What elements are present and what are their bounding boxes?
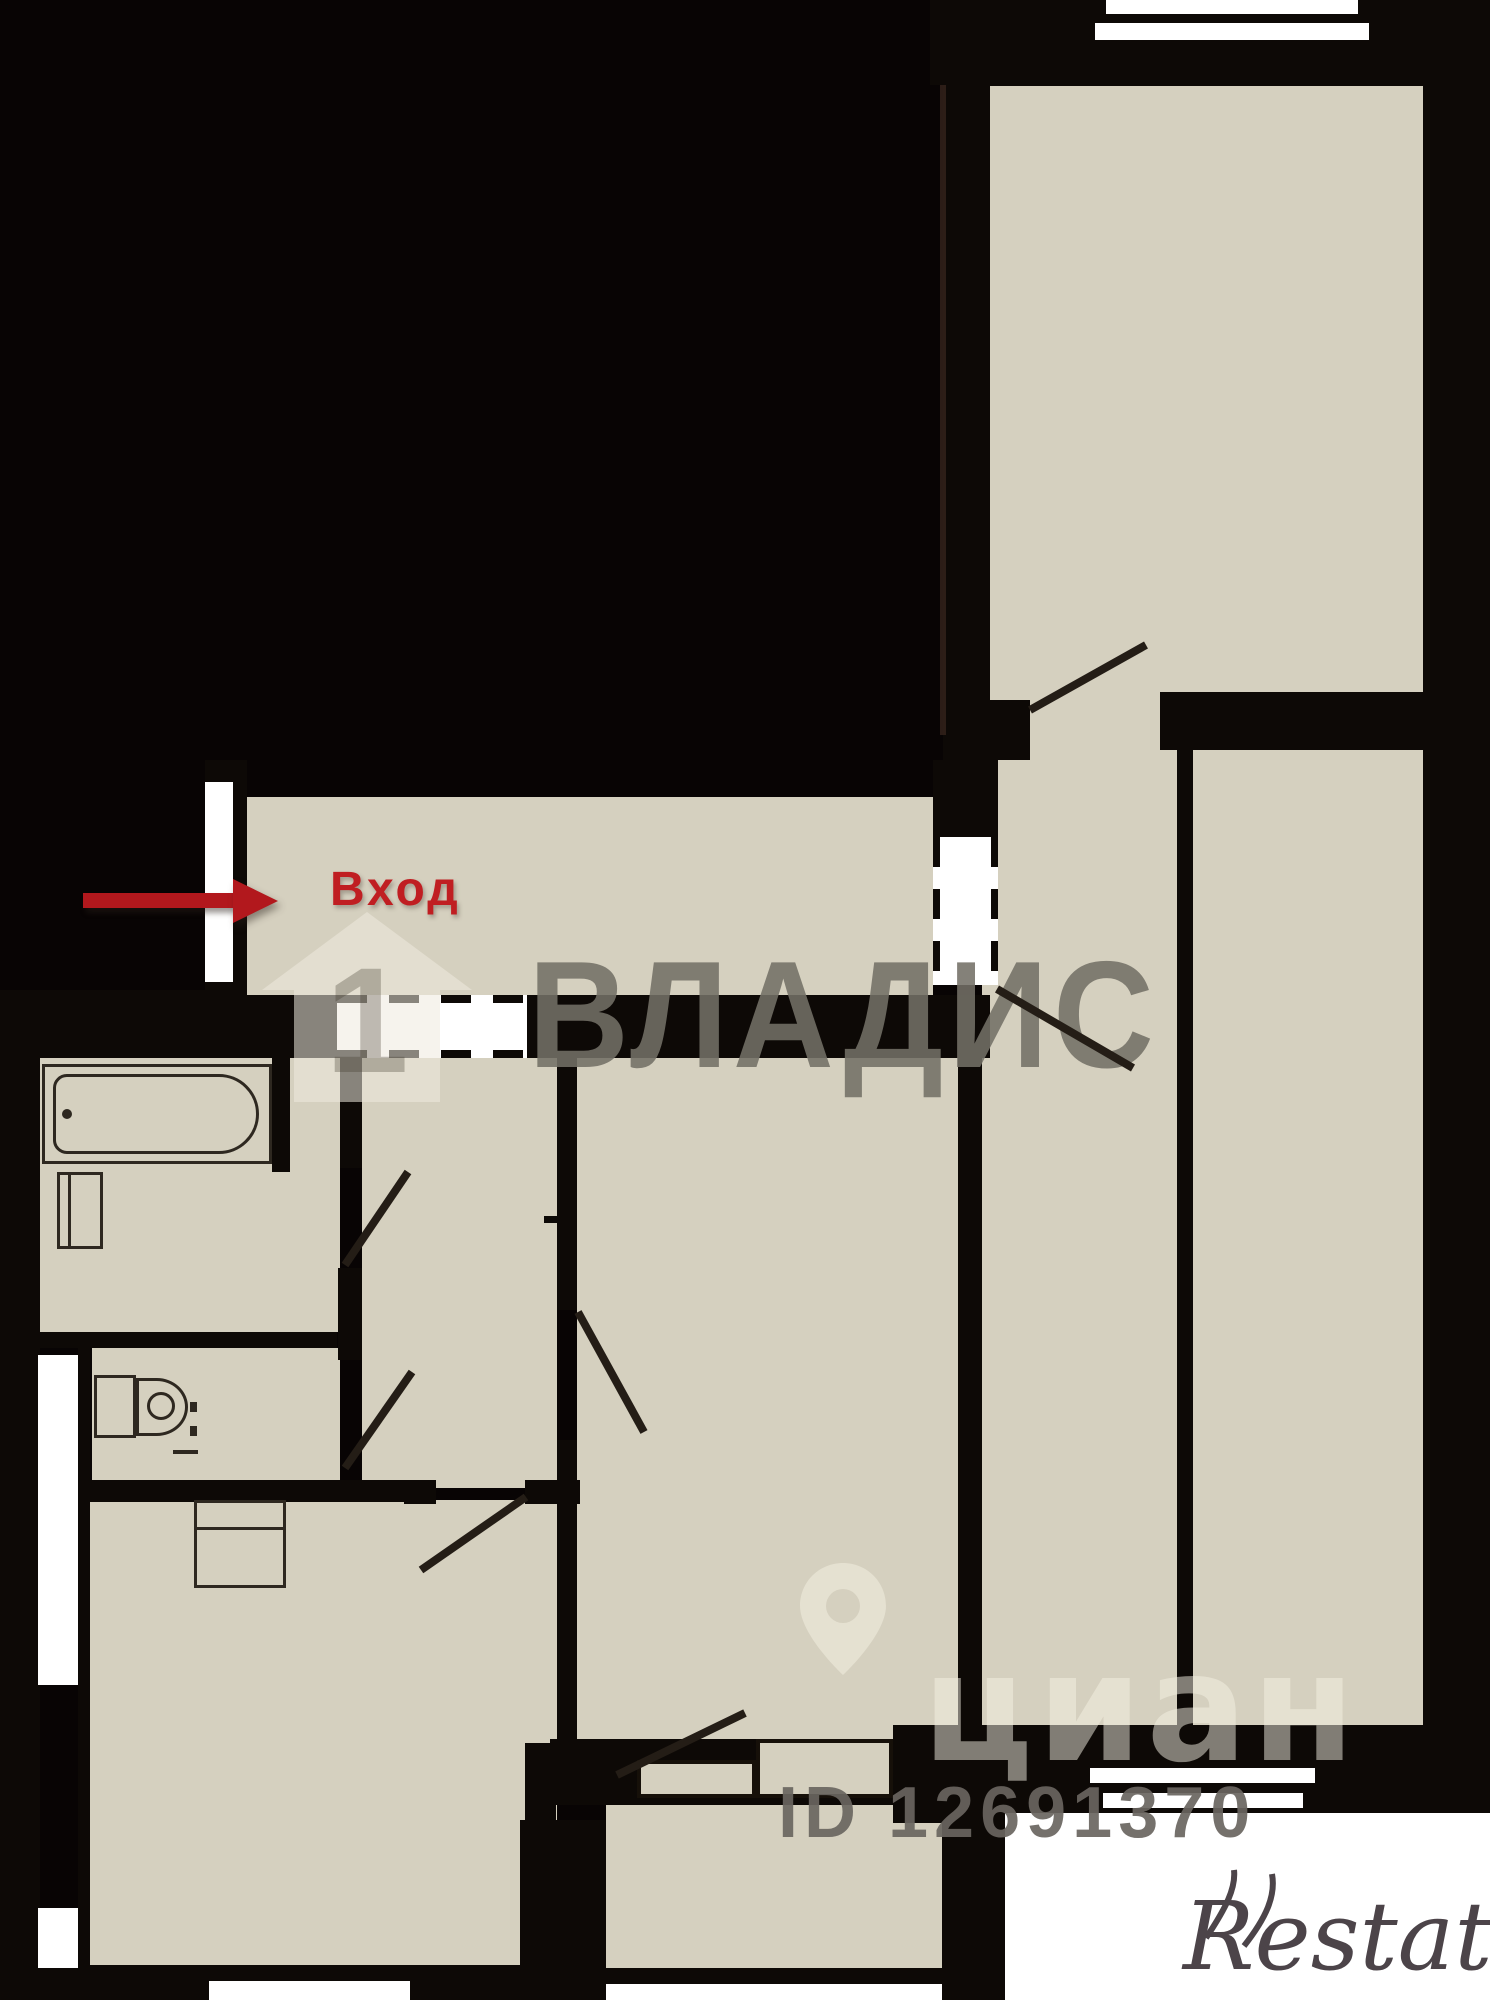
corridor	[362, 1058, 557, 1488]
vladis-house-logo-icon: 1	[262, 912, 472, 1102]
toilet-mark	[190, 1402, 197, 1412]
entrance-label: Вход	[330, 862, 461, 917]
closet-cell	[637, 1760, 756, 1798]
svg-text:1: 1	[325, 936, 408, 1102]
toilet-tank-icon	[94, 1375, 136, 1438]
listing-id-text: ID 12691370	[778, 1772, 1256, 1854]
wall	[37, 1480, 406, 1502]
wall	[943, 700, 1030, 760]
window-bottom-left	[209, 1981, 410, 2000]
wall-tick	[544, 1216, 558, 1223]
wall	[78, 1348, 90, 1985]
wall	[1423, 0, 1490, 1770]
wall	[933, 760, 998, 837]
wall	[338, 1268, 362, 1360]
wall	[1177, 750, 1193, 1725]
restate-watermark-text: Restate	[1183, 1882, 1490, 1992]
wall	[520, 1820, 606, 2000]
window-top-outer	[1106, 0, 1358, 14]
cian-watermark-text: циан	[922, 1622, 1359, 1796]
room-top-right	[990, 85, 1423, 700]
wall	[40, 990, 205, 1058]
room-right	[1193, 760, 1423, 1725]
wall-edge-line	[940, 85, 946, 735]
wall	[557, 1440, 577, 1745]
wall	[37, 1332, 337, 1348]
entrance-arrow-icon	[83, 893, 235, 908]
toilet-mark	[173, 1450, 198, 1454]
toilet-seat-icon	[147, 1392, 175, 1420]
wall	[0, 990, 40, 2000]
window-bottom-middle	[606, 1984, 942, 2000]
sink-divider	[68, 1172, 71, 1249]
sink-icon	[57, 1172, 103, 1249]
bathtub-icon	[53, 1074, 259, 1154]
wall	[943, 85, 990, 760]
wall	[606, 1968, 942, 1984]
window-top-inner	[1095, 23, 1369, 40]
left-niche-upper	[38, 1355, 78, 1685]
wardrobe-divider	[194, 1527, 286, 1530]
room-middle	[577, 1058, 958, 1739]
room-bottom-left	[90, 1500, 557, 1965]
floor-plan: Вход 1 ВЛАДИС циан ID 12691370 Restate	[0, 0, 1490, 2000]
vladis-watermark-text: ВЛАДИС	[528, 928, 1159, 1103]
wall	[404, 1480, 436, 1504]
wall	[990, 78, 1423, 86]
left-niche-lower	[38, 1908, 78, 1968]
entrance-door-opening	[205, 782, 233, 982]
wall	[1160, 692, 1427, 750]
wardrobe-icon	[194, 1500, 286, 1588]
kitchen-strip	[982, 760, 1177, 1768]
toilet-mark	[190, 1426, 197, 1436]
cian-pin-icon	[800, 1563, 886, 1675]
faucet-icon	[62, 1109, 72, 1119]
